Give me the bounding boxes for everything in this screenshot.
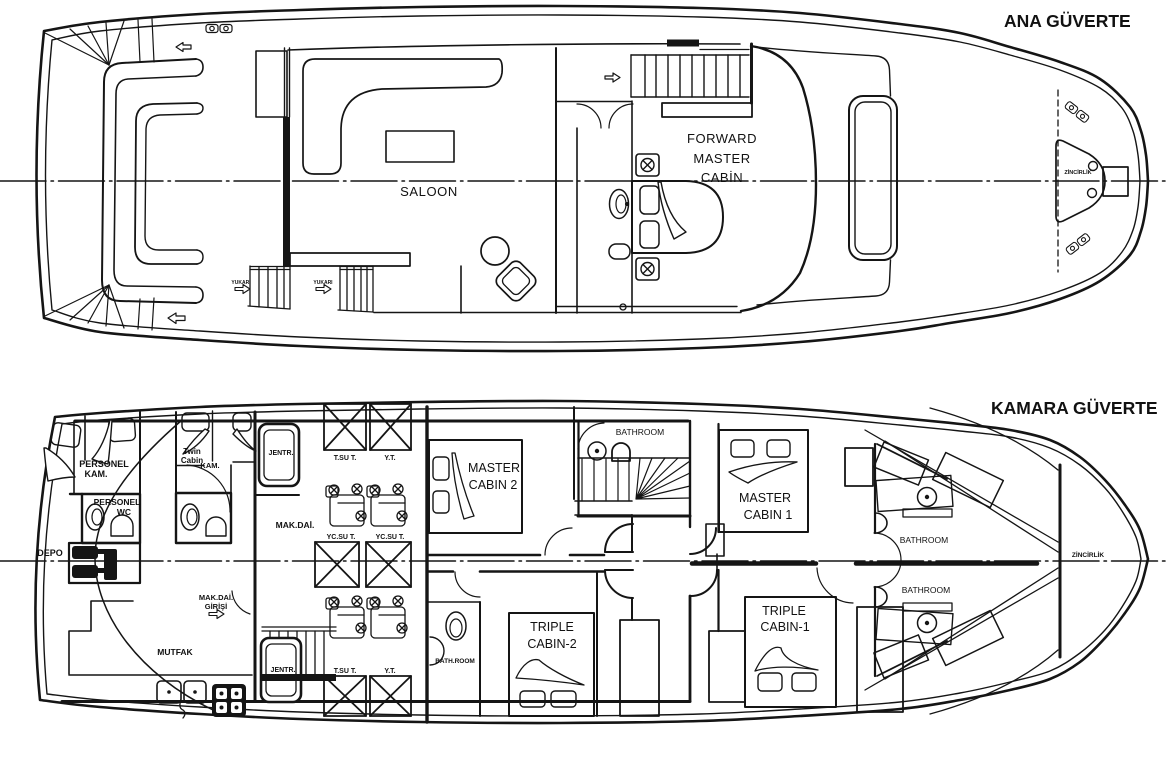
svg-text:YC.SU T.: YC.SU T. bbox=[327, 534, 356, 541]
svg-text:MUTFAK: MUTFAK bbox=[157, 647, 193, 657]
svg-text:KAMARA GÜVERTE: KAMARA GÜVERTE bbox=[991, 398, 1158, 418]
svg-text:YC.SU T.: YC.SU T. bbox=[376, 534, 405, 541]
svg-text:MASTER: MASTER bbox=[693, 151, 750, 166]
svg-text:Y.T.: Y.T. bbox=[384, 455, 395, 462]
svg-text:BATHROOM: BATHROOM bbox=[902, 585, 950, 595]
svg-text:Y.T.: Y.T. bbox=[384, 668, 395, 675]
svg-text:BATH.ROOM: BATH.ROOM bbox=[435, 658, 475, 665]
svg-text:PERSONEL: PERSONEL bbox=[79, 459, 129, 469]
svg-text:MASTER: MASTER bbox=[468, 461, 520, 475]
svg-text:CABIN 1: CABIN 1 bbox=[744, 508, 793, 522]
svg-text:WC: WC bbox=[117, 507, 131, 517]
svg-text:JENTR.: JENTR. bbox=[271, 667, 296, 674]
svg-text:KAM.: KAM. bbox=[85, 469, 108, 479]
svg-text:MAK.DAİ.: MAK.DAİ. bbox=[276, 520, 315, 530]
svg-text:JENTR.: JENTR. bbox=[269, 450, 294, 457]
svg-text:PERSONEL: PERSONEL bbox=[94, 497, 141, 507]
svg-text:T.SU T.: T.SU T. bbox=[334, 668, 357, 675]
svg-text:SALOON: SALOON bbox=[400, 184, 458, 199]
svg-text:KAM.: KAM. bbox=[200, 461, 219, 470]
svg-text:TRIPLE: TRIPLE bbox=[530, 620, 574, 634]
svg-text:ANA GÜVERTE: ANA GÜVERTE bbox=[1004, 11, 1131, 31]
svg-text:CABIN-1: CABIN-1 bbox=[760, 620, 809, 634]
svg-text:DEPO: DEPO bbox=[37, 548, 63, 558]
svg-text:BATHROOM: BATHROOM bbox=[616, 427, 664, 437]
svg-text:YUKARI: YUKARI bbox=[231, 280, 251, 286]
svg-text:MASTER: MASTER bbox=[739, 491, 791, 505]
svg-text:GİRİŞİ: GİRİŞİ bbox=[205, 602, 228, 611]
svg-text:Twin: Twin bbox=[183, 447, 201, 456]
svg-text:MAK.DAİ.: MAK.DAİ. bbox=[199, 593, 233, 602]
svg-text:ZİNCİRLİK: ZİNCİRLİK bbox=[1064, 169, 1091, 176]
svg-text:CABIN-2: CABIN-2 bbox=[527, 637, 576, 651]
svg-text:CABİN: CABİN bbox=[701, 170, 743, 185]
svg-text:T.SU T.: T.SU T. bbox=[334, 455, 357, 462]
svg-text:BATHROOM: BATHROOM bbox=[900, 535, 948, 545]
svg-text:ZİNCİRLİK: ZİNCİRLİK bbox=[1072, 551, 1104, 559]
svg-text:TRIPLE: TRIPLE bbox=[762, 604, 806, 618]
svg-text:YUKARI: YUKARI bbox=[313, 280, 333, 286]
svg-text:FORWARD: FORWARD bbox=[687, 131, 757, 146]
svg-text:CABIN 2: CABIN 2 bbox=[469, 478, 518, 492]
